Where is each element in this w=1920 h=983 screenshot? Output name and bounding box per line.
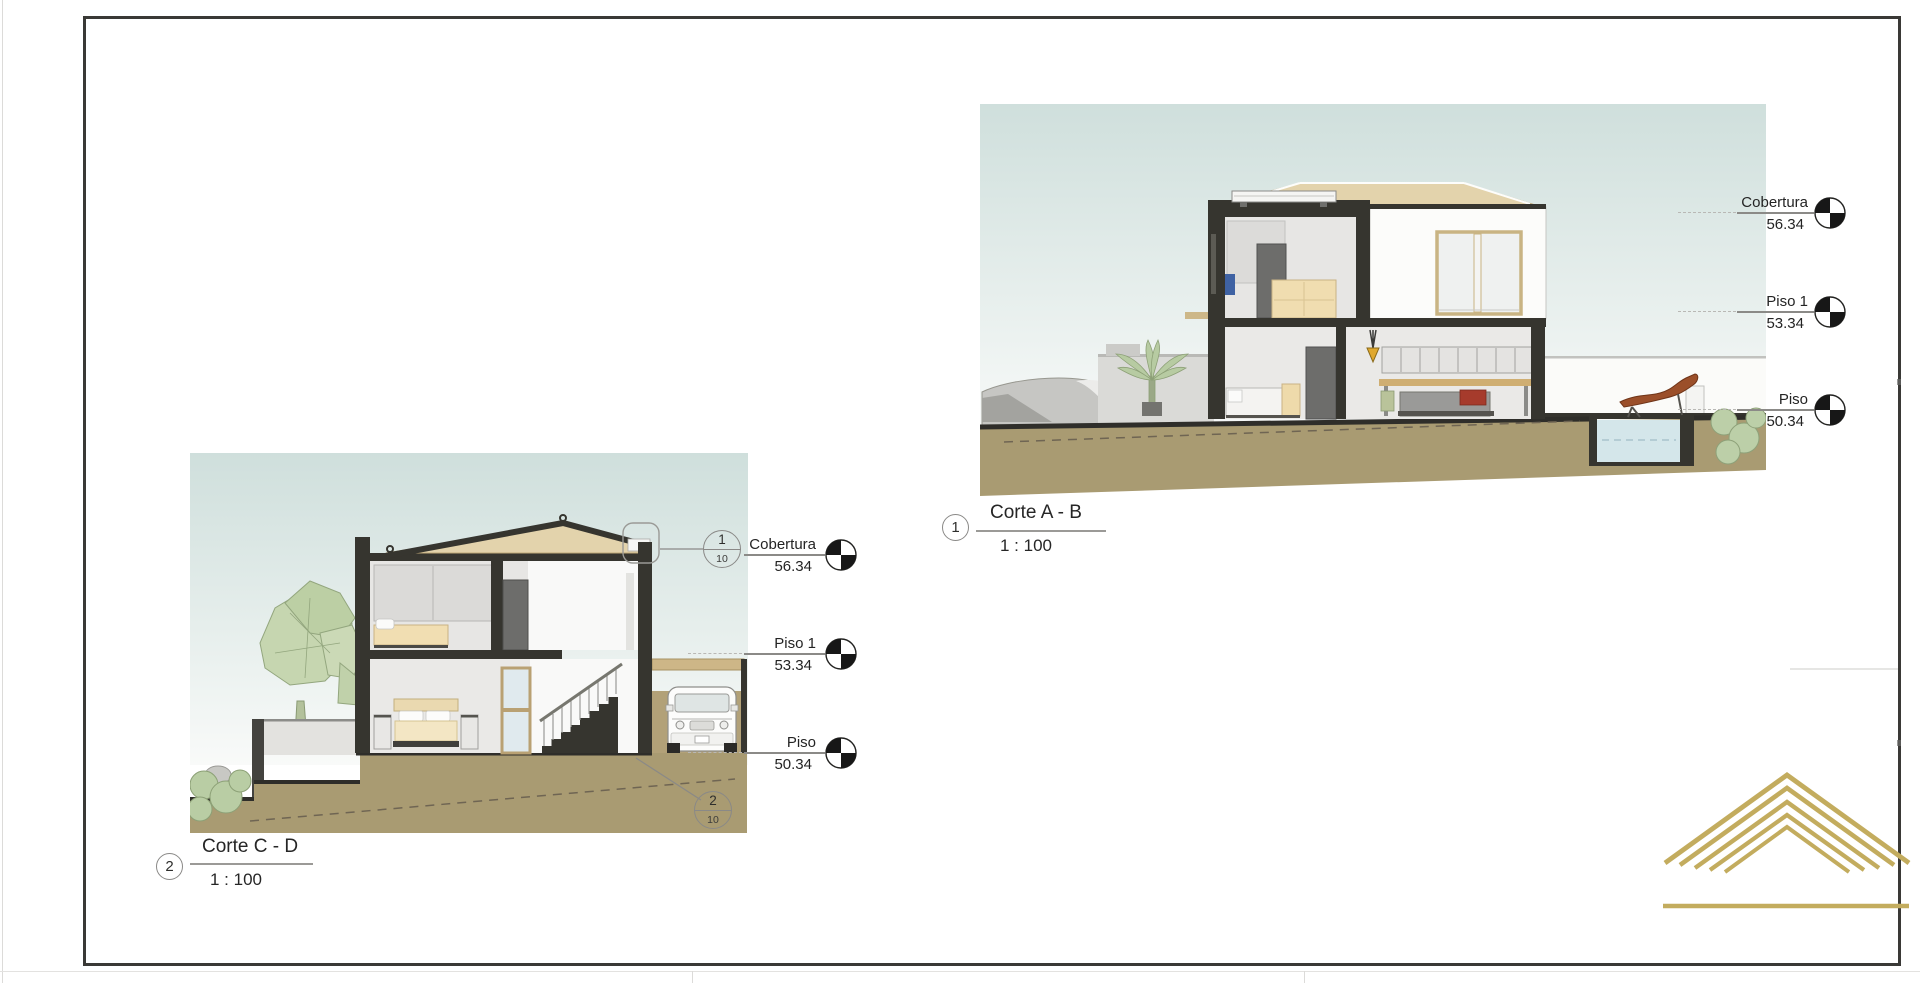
level-name: Piso	[1690, 391, 1808, 408]
lower-floor-interior	[370, 659, 638, 753]
detail-callout-eave[interactable]: 1 10	[703, 530, 741, 568]
level-datum-icon	[825, 539, 857, 571]
level-name: Piso	[704, 734, 816, 751]
cut-wall-left	[355, 537, 370, 753]
floor-slab	[370, 650, 562, 659]
level-datum-icon	[1814, 296, 1846, 328]
cut-wall-mid	[1356, 200, 1370, 322]
level-line	[688, 752, 742, 753]
callout-divider	[703, 549, 741, 550]
view-number-cd[interactable]: 2	[156, 853, 183, 880]
bed-lower	[393, 699, 459, 747]
upper-volume	[1368, 204, 1546, 319]
level-line	[1737, 212, 1814, 214]
title-underline	[190, 863, 313, 865]
detail-number: 1	[704, 532, 740, 547]
level-elevation: 53.34	[704, 657, 812, 674]
bottom-strip-divider	[692, 971, 693, 983]
floor-slab	[1210, 318, 1546, 327]
eave-ledge	[1185, 312, 1210, 319]
level-marker-ab-piso[interactable]: Piso 50.34	[1678, 391, 1848, 433]
view-title-ab[interactable]: Corte A - B	[990, 502, 1082, 524]
view-number-ab[interactable]: 1	[942, 514, 969, 541]
sheet: Cobertura 56.34 Piso 1 53.34 Piso 50.34 …	[0, 0, 1920, 983]
view-corte-ab-drawing[interactable]	[980, 104, 1766, 496]
view-scale-cd[interactable]: 1 : 100	[210, 870, 262, 890]
cut-wall-left	[1208, 200, 1225, 419]
level-line	[744, 653, 825, 655]
bottom-strip-divider	[1304, 971, 1305, 983]
door	[1306, 347, 1336, 419]
logo-chevrons	[1665, 775, 1909, 872]
level-elevation: 53.34	[1692, 315, 1804, 332]
detail-number: 2	[695, 793, 731, 808]
view-title-cd[interactable]: Corte C - D	[202, 836, 298, 858]
canvas-left-edge	[2, 0, 3, 983]
hanging-garment	[1225, 274, 1235, 295]
garden-wall	[264, 719, 360, 755]
cut-wall-right	[1531, 322, 1545, 419]
level-elevation: 50.34	[704, 756, 812, 773]
level-line	[688, 653, 742, 654]
level-datum-icon	[1814, 197, 1846, 229]
glass-door	[502, 668, 530, 753]
level-line	[744, 752, 825, 754]
bed-lower	[1226, 384, 1300, 418]
level-name: Cobertura	[1690, 194, 1808, 211]
level-marker-cd-piso1[interactable]: Piso 1 53.34	[688, 635, 860, 677]
cut-wall-right	[638, 542, 652, 753]
view-scale-ab[interactable]: 1 : 100	[1000, 536, 1052, 556]
upper-floor-interior	[370, 561, 638, 650]
detail-callout-footing[interactable]: 2 10	[694, 791, 732, 829]
level-elevation: 50.34	[1692, 413, 1804, 430]
level-marker-ab-cobertura[interactable]: Cobertura 56.34	[1678, 194, 1848, 236]
level-datum-icon	[1814, 394, 1846, 426]
level-line	[1737, 311, 1814, 313]
logo	[1655, 765, 1915, 915]
roof-cut-band	[1208, 200, 1356, 217]
door	[503, 580, 528, 650]
title-underline	[976, 530, 1106, 532]
level-datum-icon	[825, 638, 857, 670]
level-line	[1678, 311, 1736, 312]
detail-sheet: 10	[695, 814, 731, 826]
detail-sheet: 10	[704, 553, 740, 565]
upper-floor-interior	[1225, 217, 1356, 318]
level-datum-icon	[825, 737, 857, 769]
level-name: Piso 1	[1690, 293, 1808, 310]
level-line	[744, 554, 825, 556]
level-elevation: 56.34	[1692, 216, 1804, 233]
level-line	[1678, 212, 1736, 213]
level-line	[1678, 409, 1736, 410]
bottom-strip-line	[0, 971, 1920, 972]
level-name: Piso 1	[704, 635, 816, 652]
lower-floor-interior	[1225, 327, 1535, 419]
view-corte-cd-drawing[interactable]	[190, 453, 748, 833]
callout-divider	[694, 810, 732, 811]
bed-upper	[1272, 280, 1336, 318]
level-line	[1737, 409, 1814, 411]
level-marker-cd-piso[interactable]: Piso 50.34	[688, 734, 860, 776]
level-marker-ab-piso1[interactable]: Piso 1 53.34	[1678, 293, 1848, 335]
